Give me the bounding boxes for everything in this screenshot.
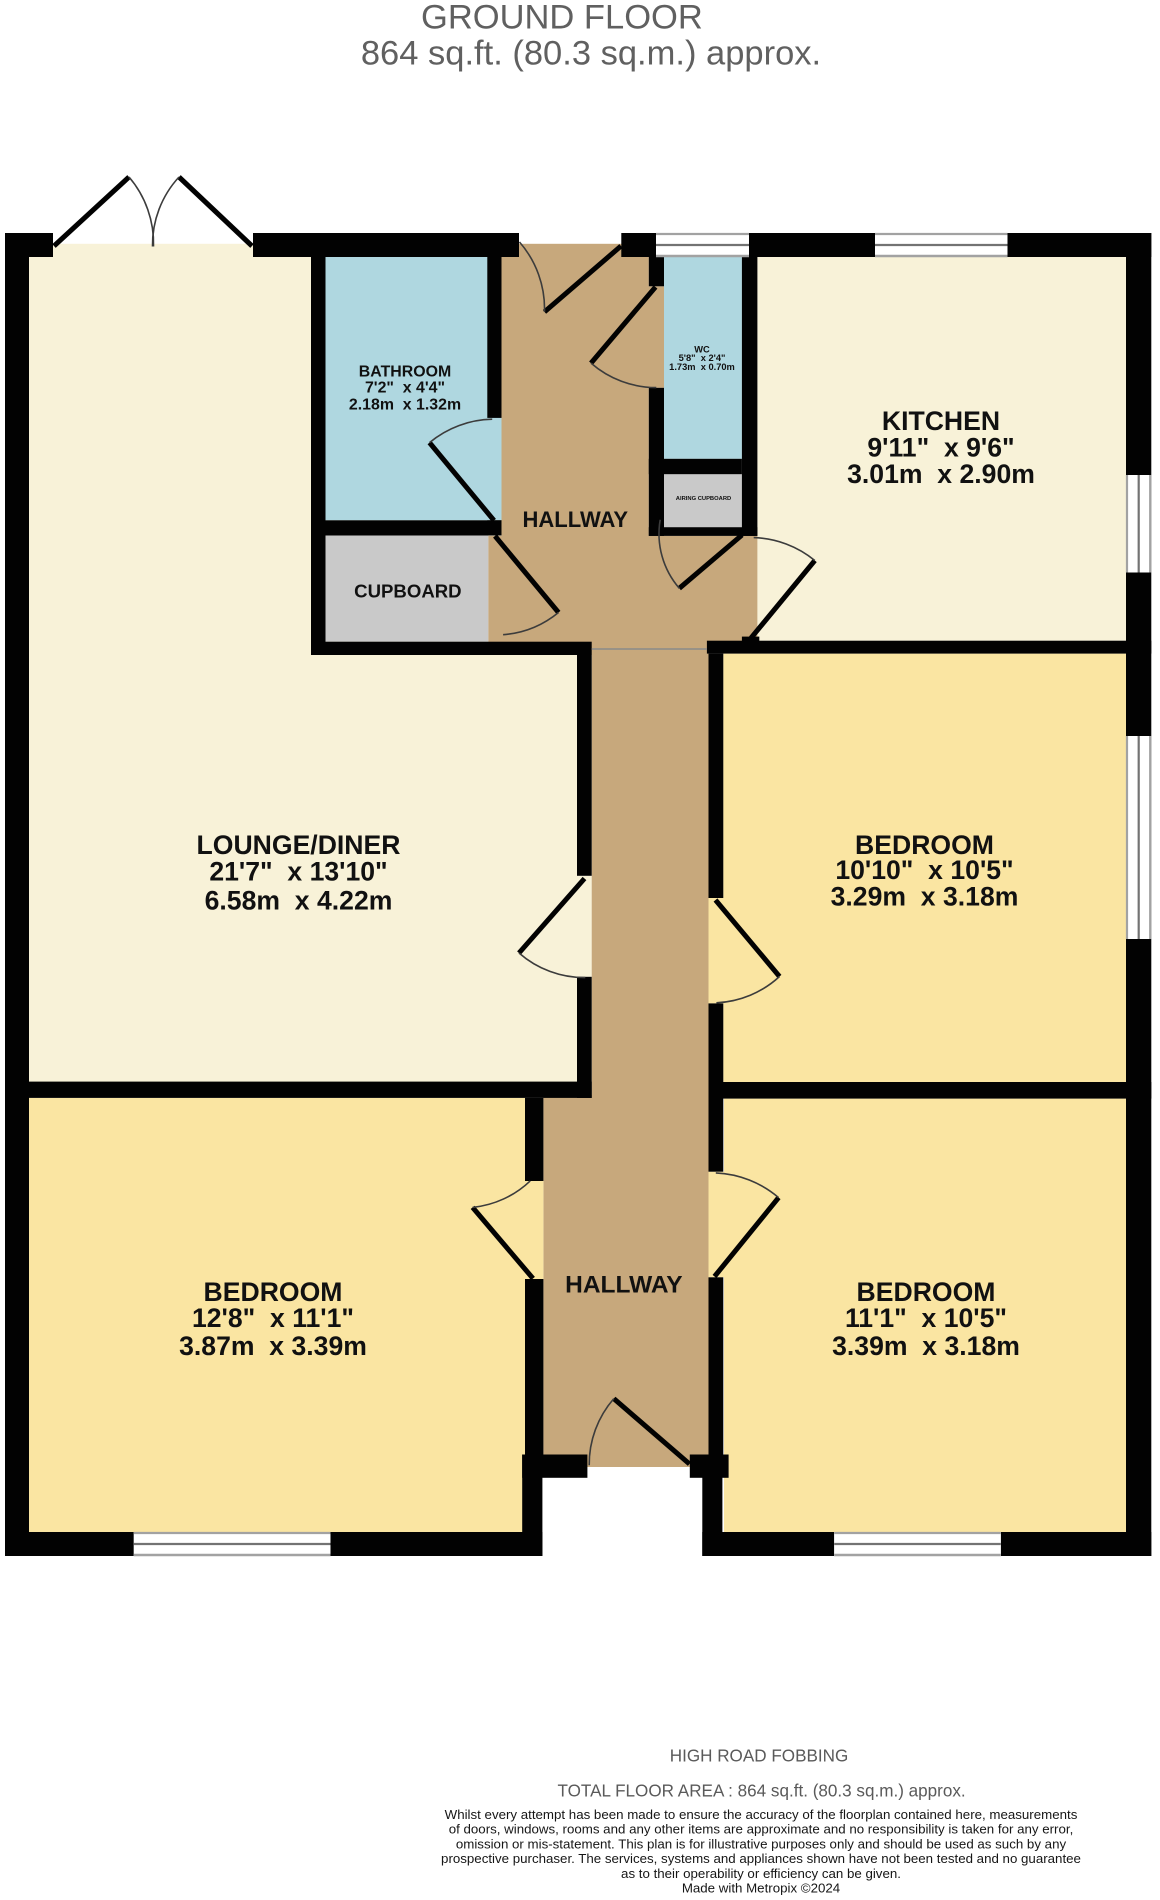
svg-text:as to their operability or eff: as to their operability or efficiency ca… bbox=[621, 1866, 901, 1881]
svg-text:HIGH ROAD FOBBING: HIGH ROAD FOBBING bbox=[670, 1747, 849, 1766]
svg-text:TOTAL FLOOR AREA : 864 sq.ft.: TOTAL FLOOR AREA : 864 sq.ft. (80.3 sq.m… bbox=[557, 1782, 965, 1801]
svg-text:3.39m x 3.18m: 3.39m x 3.18m bbox=[832, 1331, 1020, 1361]
svg-text:6.58m x 4.22m: 6.58m x 4.22m bbox=[205, 885, 393, 915]
svg-text:3.29m x 3.18m: 3.29m x 3.18m bbox=[831, 882, 1019, 912]
svg-text:864 sq.ft. (80.3 sq.m.) approx: 864 sq.ft. (80.3 sq.m.) approx. bbox=[361, 35, 821, 73]
svg-text:BATHROOM: BATHROOM bbox=[359, 363, 451, 380]
svg-text:CUPBOARD: CUPBOARD bbox=[354, 581, 461, 602]
svg-text:1.73m x 0.70m: 1.73m x 0.70m bbox=[669, 362, 735, 372]
svg-text:3.01m x 2.90m: 3.01m x 2.90m bbox=[847, 459, 1035, 489]
svg-text:2.18m x 1.32m: 2.18m x 1.32m bbox=[349, 396, 461, 413]
svg-text:10'10" x 10'5": 10'10" x 10'5" bbox=[835, 855, 1013, 885]
svg-text:12'8" x 11'1": 12'8" x 11'1" bbox=[192, 1303, 354, 1333]
svg-text:3.87m x 3.39m: 3.87m x 3.39m bbox=[179, 1331, 367, 1361]
svg-text:of doors, windows, rooms and a: of doors, windows, rooms and any other i… bbox=[449, 1822, 1074, 1837]
svg-text:HALLWAY: HALLWAY bbox=[523, 507, 629, 532]
svg-text:HALLWAY: HALLWAY bbox=[565, 1272, 683, 1299]
svg-text:prospective purchaser. The ser: prospective purchaser. The services, sys… bbox=[441, 1851, 1081, 1866]
svg-text:GROUND FLOOR: GROUND FLOOR bbox=[421, 0, 703, 36]
svg-text:11'1" x 10'5": 11'1" x 10'5" bbox=[845, 1303, 1007, 1333]
svg-text:AIRING CUPBOARD: AIRING CUPBOARD bbox=[676, 496, 731, 502]
svg-text:7'2" x 4'4": 7'2" x 4'4" bbox=[365, 380, 445, 397]
svg-text:omission or mis-statement. Thi: omission or mis-statement. This plan is … bbox=[456, 1836, 1067, 1851]
svg-text:Made with Metropix ©2024: Made with Metropix ©2024 bbox=[682, 1881, 840, 1896]
svg-text:9'11" x 9'6": 9'11" x 9'6" bbox=[867, 432, 1014, 462]
svg-text:21'7" x 13'10": 21'7" x 13'10" bbox=[209, 856, 387, 886]
svg-text:Whilst every attempt has been: Whilst every attempt has been made to en… bbox=[445, 1807, 1078, 1822]
